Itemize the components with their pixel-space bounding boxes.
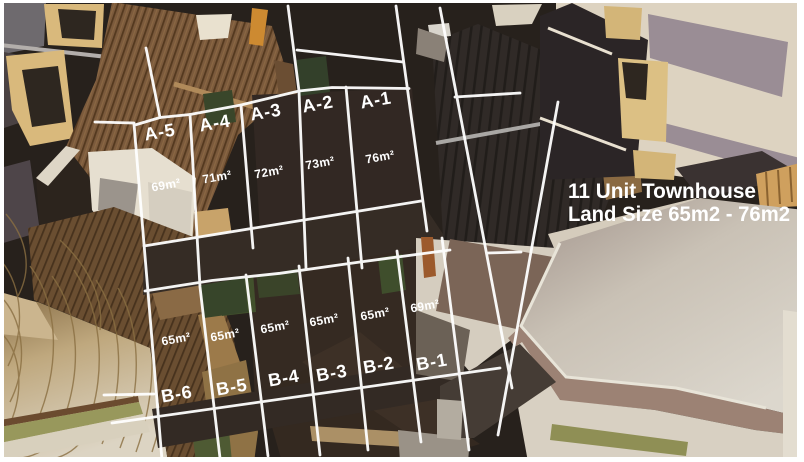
svg-text:11 Unit Townhouse: 11 Unit Townhouse xyxy=(568,180,756,203)
svg-text:Land Size 65m2 - 76m2: Land Size 65m2 - 76m2 xyxy=(568,203,790,226)
